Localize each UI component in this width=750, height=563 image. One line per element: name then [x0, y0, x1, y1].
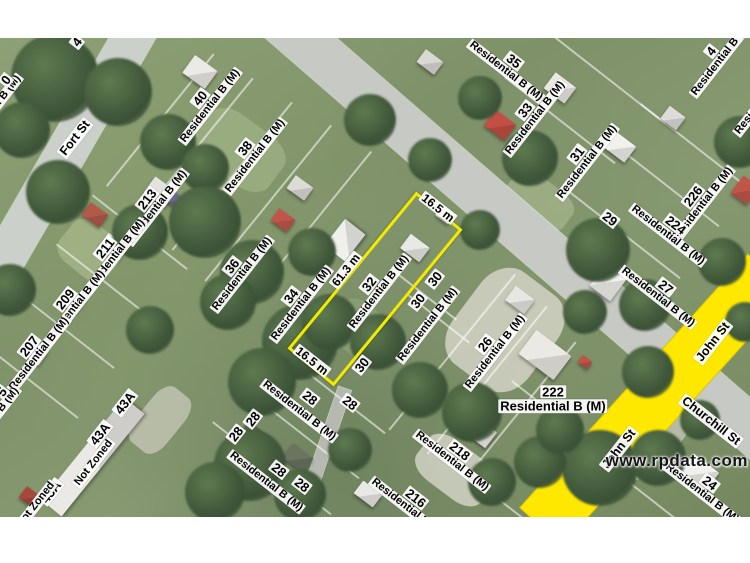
- zone-label: Residential B (M): [6, 314, 72, 394]
- tree-canopy: [408, 138, 452, 182]
- building-roof: [660, 106, 686, 131]
- building-roof: [416, 49, 443, 75]
- tree-canopy: [126, 306, 174, 354]
- tree-canopy: [563, 290, 607, 334]
- zone-label: Residential B (M): [688, 38, 750, 100]
- building-roof: [271, 208, 296, 232]
- building-roof: [730, 175, 750, 205]
- parcel-number: 222: [540, 385, 566, 398]
- tree-canopy: [458, 76, 502, 120]
- tree-canopy: [0, 102, 50, 158]
- zone-label: Residential B (M): [498, 400, 607, 413]
- top-letterbox: [0, 0, 750, 38]
- tree-canopy: [0, 264, 36, 316]
- tree-canopy: [460, 210, 500, 250]
- tree-canopy: [26, 160, 90, 224]
- tree-canopy: [84, 58, 152, 126]
- aerial-photo-canvas[interactable]: 40Residential B (M)38Residential B (M)36…: [0, 38, 750, 518]
- zone-label: Residential B (M): [554, 122, 620, 202]
- parcel-label-partial: 4Residential B (M): [677, 38, 750, 100]
- building-roof: [286, 175, 313, 201]
- parcel-label: 222Residential B (M): [498, 385, 607, 413]
- parcel-label-partial: Residential B (M): [732, 58, 750, 138]
- bottom-letterbox: [0, 517, 750, 563]
- zone-label: Residential B (M): [732, 58, 750, 138]
- tree-canopy: [392, 362, 448, 418]
- tree-canopy: [622, 346, 674, 398]
- tree-canopy: [185, 462, 245, 518]
- parcel-boundary-line: [554, 38, 665, 124]
- building-roof: [578, 355, 593, 369]
- tree-canopy: [344, 94, 396, 146]
- map-report-frame: 40Residential B (M)38Residential B (M)36…: [0, 0, 750, 563]
- watermark: www.rpdata.com: [606, 451, 748, 471]
